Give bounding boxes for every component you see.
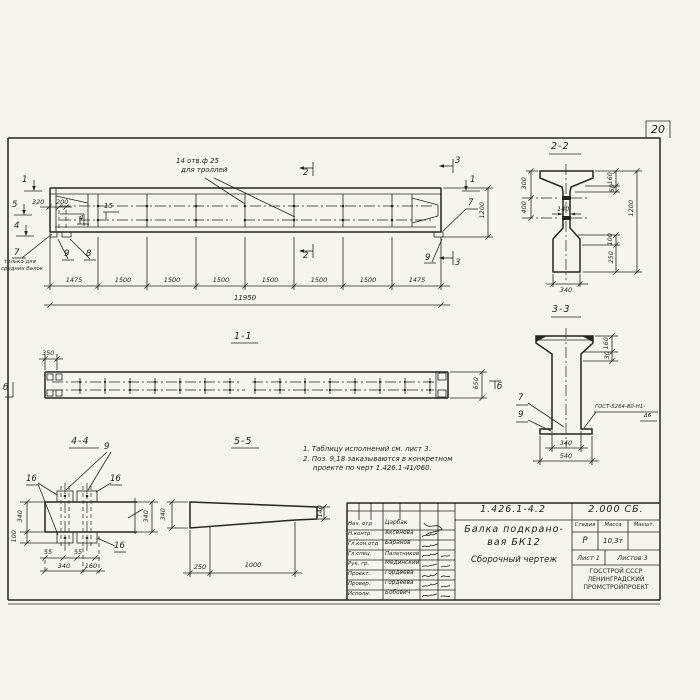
pos-label: 7 (14, 249, 19, 258)
dim-label: 1475 (57, 277, 91, 284)
signature-scribble (441, 565, 450, 567)
sheet-label: Лист 1 (572, 555, 605, 562)
dim-label: 340 (551, 287, 581, 294)
dim-label: 1500 (155, 277, 189, 284)
view-title: 4-4 (71, 437, 90, 447)
personnel-role: Нач. отд (348, 522, 372, 527)
dim-label: 400 (521, 192, 528, 222)
drawing-subtitle: Сборочный чертеж (457, 556, 571, 565)
pos-label: 9 (64, 250, 69, 259)
dim-label: 30 (604, 340, 611, 370)
holes-note: для троллей (181, 167, 227, 174)
signature-scribble (441, 576, 450, 577)
dim-label: 320 (32, 199, 44, 206)
section-marker: 2 (303, 252, 308, 261)
pos-label: 7 (518, 394, 523, 403)
dim-label: 160 (81, 563, 101, 570)
dim-label: 350 (42, 350, 54, 357)
stage-header: Стадия (572, 523, 598, 528)
personnel-role: Исполн. (348, 592, 371, 597)
stage-value: Р (572, 537, 598, 546)
dim-label: 1500 (302, 277, 336, 284)
dim-label: 1200 (479, 195, 486, 225)
dim-label: 250 (186, 564, 214, 571)
dim-label: 55 (41, 549, 55, 556)
personnel-role: Провер. (348, 582, 370, 587)
org-name: ЛЕНИНГРАДСКИЙ (572, 577, 660, 583)
signature-scribble (422, 553, 438, 557)
pos-label: 15 (104, 203, 113, 210)
pos-label: 7 (468, 199, 473, 208)
view-title: 1-1 (234, 332, 253, 342)
pos-label: 8 (86, 250, 91, 259)
signature-scribble (441, 555, 450, 557)
personnel-role: Проект. (348, 572, 370, 577)
view-title: 5-5 (234, 437, 253, 447)
dim-label: 1475 (400, 277, 434, 284)
weld-note: Δ6 (644, 414, 651, 419)
dim-label: 1500 (253, 277, 287, 284)
section-marker: 3 (455, 259, 460, 268)
signature-scribble (441, 585, 450, 587)
dim-label: 1000 (238, 562, 268, 569)
org-name: ГОССТРОЙ СССР (572, 569, 660, 575)
dim-label: 140 (317, 496, 324, 526)
signature-scribble (441, 596, 450, 597)
doc-code: 2.000 СБ. (574, 505, 658, 515)
dim-label: 340 (551, 440, 581, 447)
pos-label: 16 (26, 475, 37, 484)
personnel-role: Гл.кон.отд (348, 542, 378, 547)
pos-label: 4 (79, 215, 83, 222)
dim-label: 650 (473, 368, 480, 398)
doc-number: 1.426.1-4.2 (458, 505, 568, 515)
personnel-name: Царбак (385, 521, 407, 527)
dim-label: 540 (551, 453, 581, 460)
personnel-name: Палатников (385, 552, 419, 557)
dim-label: 1200 (628, 193, 635, 223)
dim-label: 340 (17, 501, 24, 531)
section-marker: 5 (12, 201, 17, 210)
pos-label: 9 (518, 411, 523, 420)
pos-note: только для (4, 260, 36, 265)
dim-label: 340 (143, 501, 150, 531)
org-name: ПРОМСТРОЙПРОЕКТ (572, 585, 660, 591)
note-line: 2. Поз. 9,18 заказываются в конкретном (303, 456, 453, 463)
signature-scribble (422, 564, 437, 567)
personnel-role: Н.контр. (348, 532, 372, 537)
pos-label: 16 (110, 475, 121, 484)
pos-note: средних балок (1, 267, 43, 272)
personnel-name: Гордеева (385, 571, 414, 577)
section-marker: 1 (22, 176, 27, 185)
personnel-role: Гл.спец. (348, 552, 371, 557)
pos-label: 16 (114, 542, 125, 551)
note-line: проекте по черт 1.426.1-41/060. (313, 465, 432, 472)
section-3-3-outline (536, 336, 593, 434)
personnel-name: Гордеева (385, 581, 414, 587)
signature-scribble (422, 583, 438, 587)
dim-label-total: 11950 (221, 295, 269, 302)
scale-header: Масшт. (628, 523, 660, 528)
dim-label: 200 (56, 199, 68, 206)
section-title: 3-3 (552, 305, 571, 315)
dim-label: 100 (11, 521, 18, 551)
signature-scribble (422, 594, 437, 597)
dim-label: 340 (160, 499, 167, 529)
sheets-label: Листов 3 (605, 555, 660, 562)
mass-header: Масса (598, 523, 628, 528)
dim-label: 1500 (106, 277, 140, 284)
pos-label: 9 (104, 443, 109, 452)
note-line: 1. Таблицу исполнений см. лист 3. (303, 446, 431, 453)
section-marker: 1 (470, 176, 475, 185)
view-5-5-outline (190, 502, 317, 528)
sheet-number: 20 (646, 124, 670, 135)
holes-note: 14 отв.ф 25 (176, 158, 219, 165)
section-title: 2-2 (551, 142, 570, 152)
personnel-name: Мединский (385, 561, 419, 567)
dim-label: 1500 (204, 277, 238, 284)
section-marker: 4 (14, 222, 19, 231)
drawing-title: Балка подкрано- (457, 525, 571, 535)
section-marker: б (3, 384, 8, 393)
section-marker: б (497, 383, 502, 392)
personnel-name: Аксенова (385, 531, 414, 537)
section-marker: 2 (303, 169, 308, 178)
pos-label: 9 (425, 254, 430, 263)
dim-label: 250 (608, 242, 615, 272)
signature-scribble (422, 544, 438, 547)
mass-value: 10,3т (598, 538, 628, 545)
personnel-name: Баранов (385, 541, 411, 547)
drawing-sheet: 20 1 5 4 320 200 15 4 7 только для средн… (0, 0, 700, 700)
dim-label: 55 (71, 549, 85, 556)
drawing-title: вая БК12 (457, 538, 571, 548)
section-marker: 3 (455, 157, 460, 166)
signature-scribble (424, 523, 442, 535)
dim-label: 340 (49, 563, 79, 570)
signature-scribble (422, 573, 437, 577)
dim-label: 140 (557, 206, 569, 213)
personnel-role: Рук. гр. (348, 562, 369, 567)
dim-label: 1500 (351, 277, 385, 284)
signature-scribble (422, 533, 437, 537)
personnel-name: Бобович (385, 591, 410, 597)
weld-note: ГОСТ-5264-80-Н1- (595, 405, 645, 410)
dim-label: 50 (609, 173, 616, 203)
